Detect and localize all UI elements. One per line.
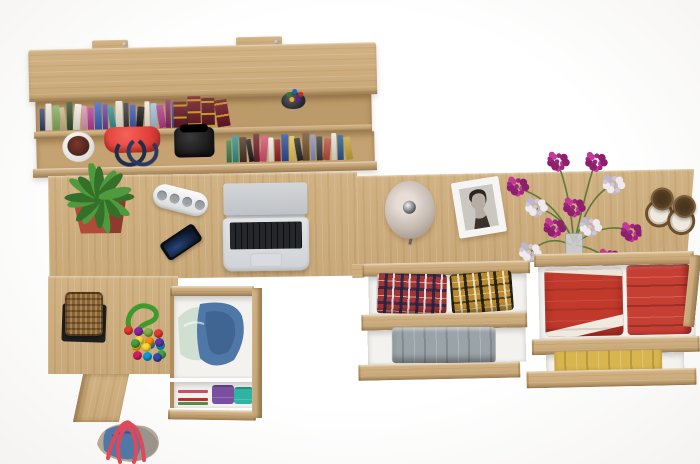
magazine-stack [178,390,208,406]
pedestal-bottom-rim [168,409,256,420]
book-row-upper [39,98,192,130]
pedestal-lower-shelf [170,382,262,408]
camera-bag-strap [180,124,208,133]
pencil-cup [281,88,305,111]
shelf-top-panel [28,42,377,102]
socket-icon [169,193,181,205]
left-drawer-1 [368,273,527,314]
laptop [222,182,309,271]
laptop-keyboard [230,221,302,249]
dresser [350,159,700,402]
folded-shirt-teal [234,387,253,404]
return-side-panel [73,374,129,422]
wall-bookshelf [28,34,381,168]
scene-room-top-view [0,0,700,464]
denim-clothes [174,296,250,378]
table-lamp [384,180,437,245]
right-drawer-front-2 [526,368,696,389]
bead-toy [120,300,170,366]
duffel-bag [92,416,164,464]
plaid-shirt-yellow [449,270,514,314]
socket-icon [156,189,168,201]
laptop-wallpaper [226,185,310,186]
folded-red-stack [626,264,691,335]
left-drawer-front-2 [358,361,520,380]
camera-bag-black [174,127,215,158]
pedestal-side-panel [252,288,262,418]
pedestal-open-drawer [170,296,262,378]
left-drawer-2 [367,327,526,364]
pedestal-unit [170,286,262,424]
plant-leaves [64,163,135,235]
plaid-shirt-red [376,273,447,314]
desk-return [48,276,264,464]
potted-plant [54,163,147,250]
socket-icon [181,196,193,208]
book-row-lower [226,132,352,163]
right-drawer-1 [538,264,695,339]
folded-gray-jeans [392,327,496,363]
laptop-deck [223,217,310,271]
laptop-trackpad [250,253,282,267]
toy-pom-cluster [124,326,168,366]
basket-body [65,292,103,336]
candle-lantern [667,195,698,234]
laptop-screen [223,182,307,215]
pencil-cup-pens [284,89,302,103]
portrait-photo [459,184,499,231]
desk [48,168,362,284]
folded-shirt-purple [212,385,234,404]
photo-frame [451,176,507,239]
handbag-red [104,126,161,163]
white-plant-bowl [62,132,95,163]
socket-icon [194,199,206,211]
skirt-folds [544,267,623,337]
bracket-pin-icon [122,42,127,47]
red-skirt [544,267,623,337]
pedestal-top-rim [170,286,254,296]
wicker-basket [62,292,108,344]
